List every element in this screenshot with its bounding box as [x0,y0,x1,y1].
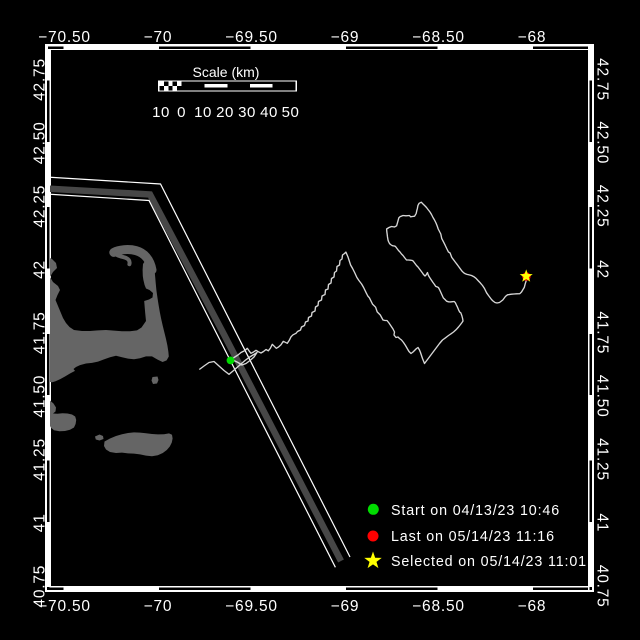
svg-text:40.75: 40.75 [594,565,611,608]
svg-text:−70: −70 [144,29,173,46]
svg-text:41.25: 41.25 [594,438,611,481]
svg-text:42.75: 42.75 [32,58,49,101]
svg-text:−69.50: −69.50 [225,598,278,615]
svg-text:42: 42 [32,260,49,279]
svg-text:Start on 04/13/23 10:46: Start on 04/13/23 10:46 [391,503,560,519]
svg-text:Scale (km): Scale (km) [193,64,260,80]
svg-text:−69: −69 [331,598,360,615]
svg-text:−69.50: −69.50 [225,29,278,46]
svg-text:42.75: 42.75 [594,58,611,101]
svg-text:41.75: 41.75 [32,311,49,354]
svg-text:−70: −70 [144,598,173,615]
svg-text:41.50: 41.50 [594,375,611,418]
svg-text:50: 50 [282,104,300,121]
svg-text:−68.50: −68.50 [412,29,465,46]
svg-text:42: 42 [594,260,611,279]
svg-text:30: 30 [238,104,256,121]
svg-text:−68: −68 [518,598,547,615]
svg-text:42.25: 42.25 [594,185,611,228]
svg-text:−68: −68 [518,29,547,46]
svg-text:41: 41 [594,513,611,532]
svg-text:42.50: 42.50 [32,121,49,164]
svg-text:−68.50: −68.50 [412,598,465,615]
svg-text:42.50: 42.50 [594,121,611,164]
svg-text:41.50: 41.50 [32,375,49,418]
svg-text:0: 0 [177,104,186,121]
svg-text:40.75: 40.75 [32,565,49,608]
svg-text:10: 10 [152,104,170,121]
svg-text:41.75: 41.75 [594,311,611,354]
svg-text:20: 20 [216,104,234,121]
svg-text:−70.50: −70.50 [38,29,91,46]
svg-text:41: 41 [32,513,49,532]
svg-text:40: 40 [260,104,278,121]
svg-text:42.25: 42.25 [32,185,49,228]
svg-text:10: 10 [194,104,212,121]
svg-text:Selected on 05/14/23 11:01: Selected on 05/14/23 11:01 [391,554,587,570]
svg-text:−69: −69 [331,29,360,46]
svg-text:41.25: 41.25 [32,438,49,481]
svg-text:Last on 05/14/23 11:16: Last on 05/14/23 11:16 [391,529,555,545]
